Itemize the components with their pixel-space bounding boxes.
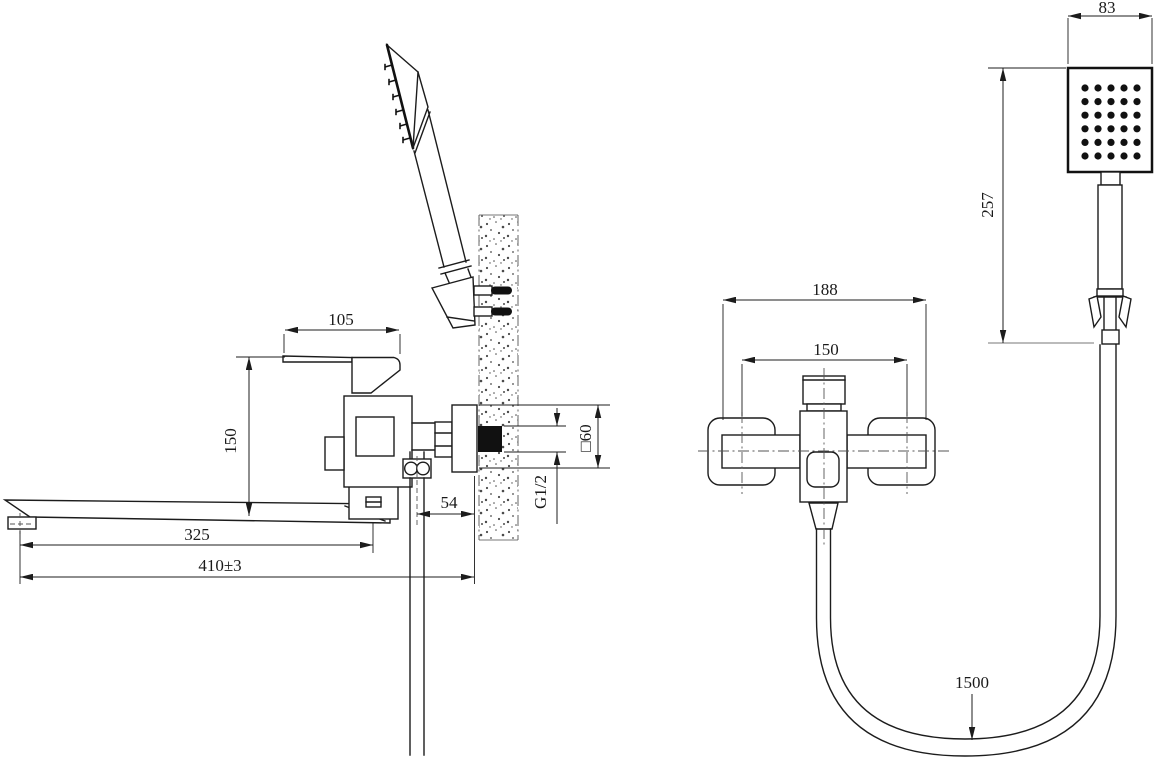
wall-section — [479, 215, 518, 540]
dim-label-hose-offset: 54 — [441, 493, 459, 512]
left-inlet-pipe — [722, 435, 800, 468]
mixer-side — [5, 356, 502, 755]
faucet-technical-drawing: 105 150 325 410±3 54 G1/2 — [0, 0, 1159, 760]
screw-shaft — [474, 286, 492, 295]
dim-label-hose-length: 1500 — [955, 673, 989, 692]
right-inlet-pipe — [847, 435, 926, 468]
dim-label-center-distance: 150 — [813, 340, 839, 359]
shower-handle-front — [1097, 172, 1123, 296]
dim-label-thread-size: G1/2 — [531, 475, 550, 509]
dim-label-head-width: 83 — [1099, 0, 1116, 17]
wall-hatching — [479, 215, 518, 540]
hex-nut — [435, 422, 452, 457]
dim-label-handle-projection: 105 — [328, 310, 354, 329]
eccentric-fitting — [478, 426, 502, 452]
dim-label-total-reach: 410±3 — [198, 556, 241, 575]
aerator — [8, 517, 36, 529]
diverter-button-front — [807, 452, 839, 487]
hose-cone — [809, 503, 838, 529]
dim-label-escutcheon-size: □60 — [576, 424, 595, 451]
spout — [5, 500, 390, 523]
wall-escutcheon-side — [452, 405, 477, 472]
side-view-dimensions: 105 150 325 410±3 54 G1/2 — [20, 310, 610, 584]
dim-label-inlet-span: 188 — [812, 280, 838, 299]
side-view: 105 150 325 410±3 54 G1/2 — [5, 45, 610, 755]
lever-handle-side — [283, 356, 400, 393]
shower-handle-side — [414, 110, 472, 287]
screw-anchor — [491, 308, 512, 316]
technical-drawing-page: 105 150 325 410±3 54 G1/2 — [0, 0, 1159, 760]
shower-holder-front — [1089, 296, 1131, 344]
dim-label-mount-height: 150 — [221, 428, 240, 454]
screw-shaft — [474, 307, 492, 316]
shower-hose-front — [817, 345, 1117, 756]
dim-label-spout-reach: 325 — [184, 525, 210, 544]
dim-label-shower-length: 257 — [978, 192, 997, 218]
screw-anchor — [491, 287, 512, 295]
shower-hose-side — [410, 478, 424, 755]
hand-shower-front — [1068, 68, 1152, 344]
diverter-knob-side — [325, 437, 344, 470]
front-view: 188 150 83 257 1500 — [698, 0, 1152, 756]
